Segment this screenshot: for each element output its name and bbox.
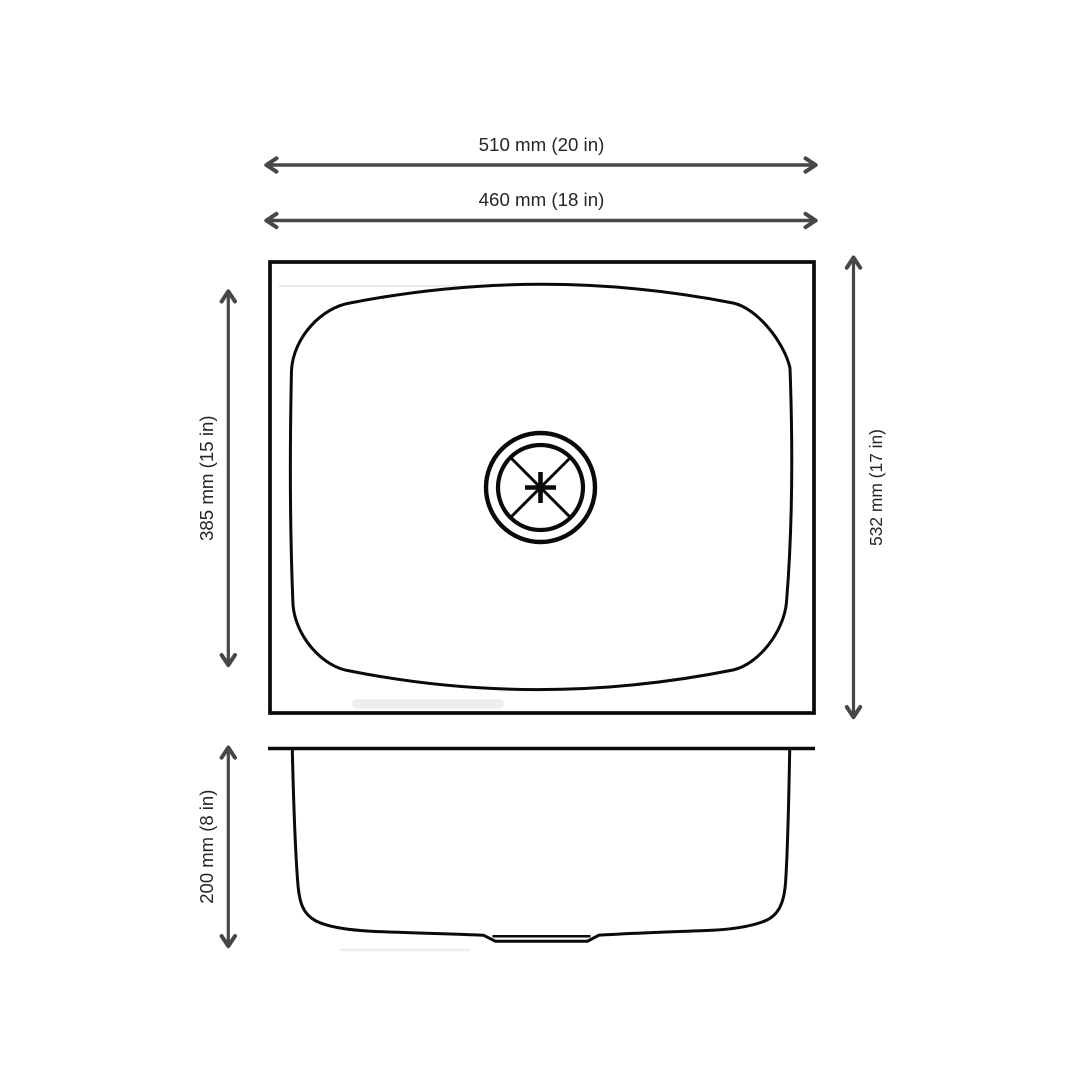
svg-text:510 mm (20 in): 510 mm (20 in) — [479, 134, 605, 155]
svg-text:200 mm (8 in): 200 mm (8 in) — [196, 790, 217, 904]
svg-text:385 mm (15 in): 385 mm (15 in) — [196, 415, 217, 541]
svg-text:532 mm (17 in): 532 mm (17 in) — [866, 429, 886, 546]
svg-text:460 mm (18 in): 460 mm (18 in) — [479, 189, 605, 210]
